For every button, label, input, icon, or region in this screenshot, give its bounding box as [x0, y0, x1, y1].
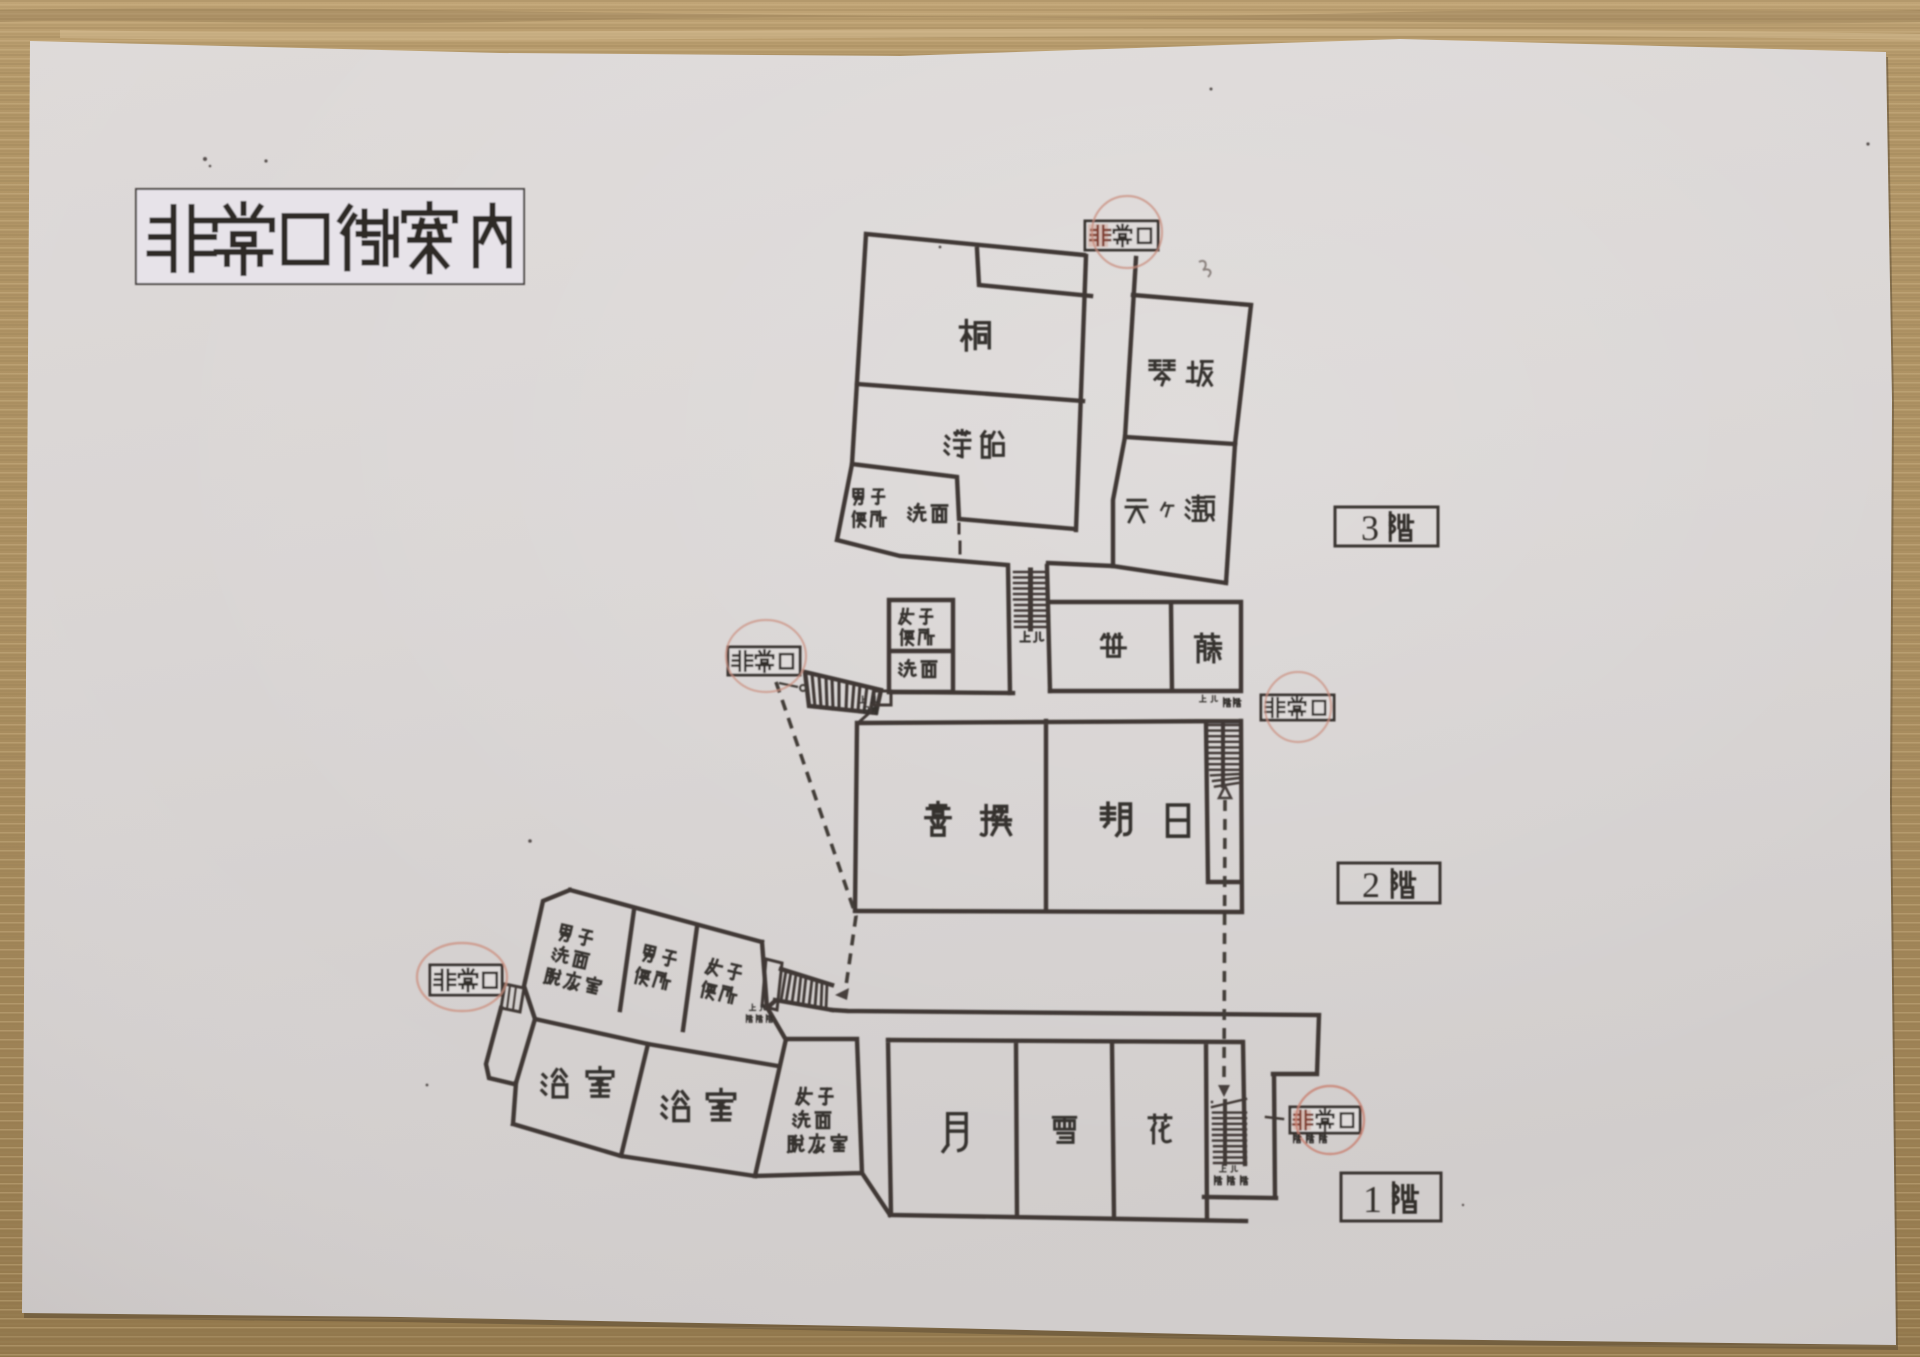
svg-text:2: 2	[1362, 865, 1380, 905]
svg-text:3: 3	[1361, 508, 1379, 548]
svg-text:1: 1	[1363, 1179, 1382, 1221]
